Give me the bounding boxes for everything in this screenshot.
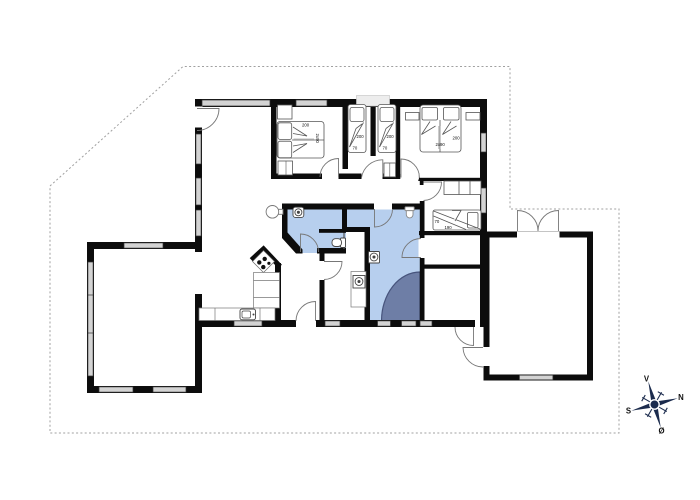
svg-text:70: 70 — [435, 219, 440, 224]
svg-text:200: 200 — [387, 134, 395, 139]
svg-text:200: 200 — [357, 134, 365, 139]
svg-text:2x90: 2x90 — [315, 134, 320, 144]
svg-text:200: 200 — [453, 136, 461, 141]
svg-text:V: V — [644, 375, 650, 384]
svg-text:70: 70 — [353, 146, 358, 151]
svg-text:Ø: Ø — [658, 427, 664, 436]
svg-text:2x90: 2x90 — [436, 142, 446, 147]
svg-text:N: N — [678, 393, 684, 402]
svg-text:200: 200 — [302, 123, 310, 128]
svg-text:70: 70 — [383, 146, 388, 151]
svg-text:190: 190 — [445, 225, 453, 230]
svg-text:S: S — [626, 407, 631, 416]
